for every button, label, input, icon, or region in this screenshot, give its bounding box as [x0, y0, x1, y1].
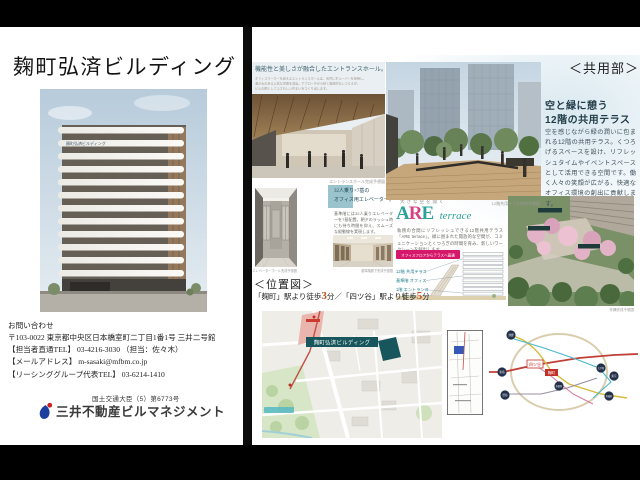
- brochure-scan: 麹町弘済ビルディング: [0, 0, 640, 480]
- garden-aerial-photo: [508, 196, 634, 306]
- contact-tel-direct: 【担当者直通TEL】 03-4216-3030 （担当：佐々木）: [8, 344, 216, 356]
- entrance-photo-credit: エントランスホール完成予想図: [295, 179, 385, 185]
- route-highlight-kojimachi: 麹町: [548, 370, 556, 375]
- diagram-label-terrace: 12階 共用テラス: [396, 268, 427, 275]
- route-station-shibuya: 渋谷: [502, 393, 508, 397]
- company-name: 三井不動産ビルマネジメント: [56, 401, 225, 420]
- elevator-heading-line1: 32人乗り×7基の: [334, 188, 394, 197]
- route-station-ikebukuro: 池袋: [508, 333, 514, 337]
- diagram-badge: オフィスフロアからテラスへ直通: [401, 252, 455, 257]
- elevator-body: 基準階には32人乗りエレベーターを7基配置。朝夕のラッシュ時にも待ち時間を抑え、…: [334, 211, 393, 235]
- company-logo-row: 三井不動産ビルマネジメント: [36, 401, 225, 420]
- section-label-common-area: ＜共用部＞: [569, 58, 639, 77]
- building-sign-label: 麹町弘済ビルディング: [66, 140, 106, 146]
- access-text-pre: 「麹町」駅より徒歩: [254, 292, 321, 301]
- entrance-body-line2: 温かみのある上質な空間を演出。アプローチから続く開放的なしつらえが、: [255, 81, 360, 86]
- elevator-hall-photo-credit: エレベーターホール完成予想図: [250, 268, 297, 273]
- map-building-label: 麹町弘済ビルディング: [314, 338, 371, 346]
- route-station-tokyo: 東京: [611, 374, 617, 378]
- are-logo-script: terrace: [440, 210, 472, 222]
- terrace-heading: 空と緑に憩う 12階の共用テラス: [545, 100, 630, 128]
- contact-email: 【メールアドレス】 m-sasaki@mfbm.co.jp: [8, 356, 216, 368]
- street-map: 麹町弘済ビルディング: [262, 311, 442, 438]
- are-logo-letter-r: R: [409, 203, 422, 224]
- elevator-heading: 32人乗り×7基の オフィス用エレベーター。: [334, 188, 394, 205]
- terrace-photo-credit: 12階共用テラス完成予想図: [450, 201, 540, 207]
- terrace-body: 空を感じながら緑の潤いに包まれる12階の共用テラス。くつろげるスペースを設け、リ…: [545, 128, 636, 210]
- route-highlight-yotsuya: 四ツ谷: [529, 361, 541, 367]
- are-logo-letter-a: A: [396, 203, 409, 224]
- contact-block: お問い合わせ 〒103-0022 東京都中央区日本橋室町二丁目1番1号 三井二号…: [8, 320, 216, 381]
- aerial-photo-credit: 外構完成予想図: [544, 308, 634, 313]
- station-access-line: 「麹町」駅より徒歩3分／「四ツ谷」駅より徒歩5分: [254, 290, 430, 302]
- office-corridor-photo: [333, 235, 393, 267]
- elevator-heading-line2: オフィス用エレベーター。: [334, 197, 394, 206]
- terrace-heading-line1: 空と緑に憩う: [545, 100, 630, 114]
- terrace-heading-line2: 12階の共用テラス: [545, 114, 630, 128]
- entrance-hall-photo: 機能性と美しさが融合したエントランスホール。 オフィスワーカーを迎えるエントラン…: [252, 62, 385, 178]
- wide-area-inset-map: [447, 330, 483, 415]
- page-title: 麹町弘済ビルディング: [13, 51, 237, 81]
- entrance-body-line1: オフィスワーカーを迎えるエントランスホールは、天井に木ルーバーを採用し、: [255, 76, 366, 81]
- contact-tel-group: 【リーシンググループ代表TEL】 03-6214-1410: [8, 369, 216, 381]
- diagram-label-office: 基準階 オフィス: [396, 277, 426, 284]
- contact-address: 〒103-0022 東京都中央区日本橋室町二丁目1番1号 三井二号館: [8, 332, 216, 344]
- access-text-suffix: 分: [422, 292, 430, 301]
- contact-heading: お問い合わせ: [8, 320, 216, 332]
- rooftop-terrace-photo: [386, 62, 541, 200]
- are-logo-letter-e: E: [421, 203, 433, 224]
- elevator-hall-photo: [255, 188, 297, 267]
- access-text-mid: 分／「四ツ谷」駅より徒歩: [327, 292, 417, 301]
- mitsui-fudosan-logo-icon: [36, 401, 52, 420]
- brochure-page: 麹町弘済ビルディング: [0, 27, 640, 445]
- corridor-photo-credit: 基準階廊下完成予想図: [333, 268, 393, 273]
- route-station-shinjuku: 新宿: [499, 370, 505, 374]
- entrance-body-line3: ビルの顔としてふさわしい佇まいをつくり出します。: [255, 86, 329, 91]
- railway-route-map: 池袋 新宿 渋谷 永田町 大手町 東京 有楽町 四ツ谷 麹町: [489, 328, 638, 412]
- page-spine-divider: [243, 27, 252, 445]
- entrance-caption: 機能性と美しさが融合したエントランスホール。: [255, 65, 385, 73]
- building-exterior-photo: 麹町弘済ビルディング: [40, 89, 207, 312]
